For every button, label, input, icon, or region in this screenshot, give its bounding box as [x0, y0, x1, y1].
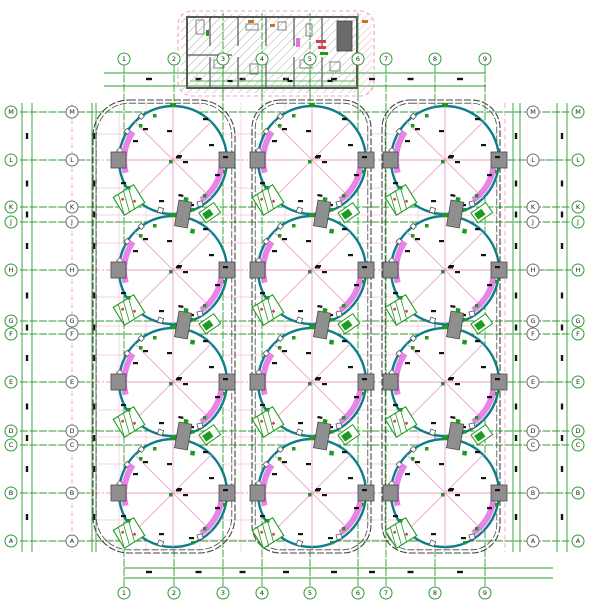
dimension-text-mark [26, 404, 28, 410]
center-label-mark [448, 266, 453, 269]
grid-bubble-label: M [530, 108, 536, 116]
manhole-tick [157, 540, 163, 546]
dimension-text-mark [328, 80, 333, 82]
annotation-text-mark [393, 292, 398, 294]
valve-symbol [463, 318, 467, 322]
valve-symbol [127, 186, 131, 190]
tank-platform-left [383, 485, 398, 501]
pump-valve [455, 197, 460, 202]
top-nozzle [442, 436, 448, 440]
annotation-text-mark [362, 266, 367, 268]
annotation-text-mark [455, 161, 460, 163]
storage-tank [111, 325, 235, 437]
equipment-block [337, 21, 352, 51]
manhole-tick [157, 317, 163, 323]
center-label-mark [448, 378, 453, 381]
valve-symbol [278, 457, 282, 461]
annotation-text-mark [487, 507, 492, 509]
grid-bubble-label: G [69, 317, 74, 325]
grid-bubble-label: A [9, 537, 14, 545]
valve-symbol [127, 408, 131, 412]
valve-symbol [425, 447, 429, 451]
pump-valve [190, 340, 195, 345]
annotation-text-mark [260, 292, 265, 294]
dimension-text-mark [561, 133, 563, 139]
manhole-tick [197, 201, 203, 207]
annotation-text-mark [260, 404, 265, 406]
grid-bubble-label: 1 [122, 589, 126, 597]
grid-bubble-label: F [576, 330, 580, 338]
storage-tanks [111, 103, 507, 548]
dimension-text-mark [196, 571, 202, 573]
annotation-text-mark [475, 228, 480, 230]
annotation-text-mark [183, 494, 188, 496]
grid-bubble-label: D [69, 427, 74, 435]
annotation-text-mark [475, 451, 480, 453]
grid-bubble-label: 8 [433, 589, 437, 597]
grid-bubble-label: B [9, 489, 13, 497]
grid-bubble-label: C [576, 441, 581, 449]
dimension-text-mark [561, 466, 563, 472]
valve-symbol [362, 280, 366, 284]
manhole-tick [469, 311, 475, 317]
grid-bubble-label: 2 [172, 55, 176, 63]
dimension-text-mark [561, 404, 563, 410]
valve-symbol [127, 296, 131, 300]
valve-symbol [475, 416, 479, 420]
valve-symbol [266, 408, 270, 412]
annotation-text-mark [487, 174, 492, 176]
center-symbol [169, 160, 173, 164]
tank-platform-left [250, 374, 265, 390]
center-symbol [308, 493, 312, 497]
annotation-text-mark [167, 352, 172, 354]
manhole-tick [197, 423, 203, 429]
storage-tank [383, 325, 507, 437]
annotation-text-mark [282, 238, 287, 240]
annotation-text-mark [475, 340, 480, 342]
pump-valve [329, 340, 334, 345]
valve-symbol [153, 447, 157, 451]
dimension-text-mark [146, 571, 152, 573]
valve-symbol [266, 296, 270, 300]
orange-text-mark [362, 20, 368, 23]
storage-tank [383, 103, 507, 215]
dimension-text-mark [515, 293, 517, 299]
tank-platform-right [491, 152, 507, 168]
dimension-text-mark [515, 133, 517, 139]
annotation-text-mark [143, 238, 148, 240]
annotation-text-mark [342, 228, 347, 230]
grid-bubble-label: B [70, 489, 74, 497]
manhole-tick [157, 207, 163, 213]
annotation-text-mark [203, 228, 208, 230]
valve-symbol [223, 392, 227, 396]
annotation-text-mark [298, 310, 303, 312]
pump-valve [190, 229, 195, 234]
pump-valve [183, 419, 188, 424]
annotation-text-mark [260, 515, 265, 517]
annotation-text-mark [133, 250, 138, 252]
dimension-text-mark [561, 514, 563, 520]
grid-bubble-label: A [70, 537, 75, 545]
annotation-text-mark [167, 130, 172, 132]
dimension-text-mark [26, 514, 28, 520]
annotation-text-mark [223, 156, 228, 158]
green-text-mark [320, 52, 328, 55]
valve-symbol [139, 234, 143, 238]
manhole-tick [469, 534, 475, 540]
pump-valve [462, 340, 467, 345]
annotation-text-mark [328, 537, 333, 539]
dimension-text-mark [561, 325, 563, 331]
valve-symbol [463, 208, 467, 212]
center-symbol [169, 270, 173, 274]
annotation-text-mark [143, 350, 148, 352]
grid-bubble-label: D [8, 427, 13, 435]
valve-symbol [495, 392, 499, 396]
annotation-text-mark [272, 140, 277, 142]
grid-bubble-label: A [576, 537, 581, 545]
annotation-text-mark [223, 489, 228, 491]
center-symbol [169, 493, 173, 497]
grid-bubble-label: E [531, 378, 535, 386]
grid-bubble-label: F [70, 330, 74, 338]
annotation-text-mark [354, 507, 359, 509]
storage-tank [111, 103, 235, 215]
valve-symbol [139, 346, 143, 350]
annotation-text-mark [342, 118, 347, 120]
tank-platform-right [358, 485, 374, 501]
valve-symbol [292, 447, 296, 451]
annotation-text-mark [203, 451, 208, 453]
valve-symbol [475, 527, 479, 531]
valve-symbol [292, 336, 296, 340]
grid-bubble-label: 5 [308, 589, 312, 597]
manhole-tick [296, 540, 302, 546]
tank-platform-right [491, 485, 507, 501]
center-label-mark [315, 156, 320, 159]
grid-bubble-label: K [70, 203, 75, 211]
tank-platform-left [250, 262, 265, 278]
dimension-text-mark [515, 466, 517, 472]
annotation-text-mark [481, 366, 486, 368]
valve-symbol [411, 457, 415, 461]
top-nozzle [309, 436, 315, 440]
valve-symbol [362, 503, 366, 507]
grid-bubble-label: M [69, 108, 75, 116]
pump-valve [190, 451, 195, 456]
grid-bubble-label: J [531, 218, 534, 226]
annotation-text-mark [183, 383, 188, 385]
annotation-text-mark [121, 182, 126, 184]
annotation-text-mark [215, 174, 220, 176]
manhole-tick [336, 201, 342, 207]
grid-bubble-label: 7 [384, 589, 388, 597]
center-label-mark [176, 489, 181, 492]
tank-platform-right [358, 152, 374, 168]
center-symbol [169, 382, 173, 386]
annotation-text-mark [133, 362, 138, 364]
manhole-tick [296, 317, 302, 323]
valve-symbol [411, 124, 415, 128]
grid-bubble-label: D [575, 427, 580, 435]
annotation-text-mark [415, 350, 420, 352]
valve-symbol [203, 194, 207, 198]
dimension-text-mark [26, 212, 28, 218]
dimension-text-mark [26, 355, 28, 361]
valve-symbol [223, 503, 227, 507]
grid-bubble-label: D [530, 427, 535, 435]
annotation-text-mark [159, 200, 164, 202]
valve-symbol [475, 194, 479, 198]
annotation-text-mark [306, 463, 311, 465]
center-symbol [308, 382, 312, 386]
dimension-text-mark [561, 212, 563, 218]
pump-valve [322, 308, 327, 313]
manhole-tick [296, 207, 302, 213]
center-symbol [441, 160, 445, 164]
valve-symbol [292, 114, 296, 118]
manhole-tick [336, 423, 342, 429]
dimension-text-mark [515, 181, 517, 187]
grid-bubble-label: 9 [483, 589, 487, 597]
annotation-text-mark [495, 266, 500, 268]
grid-bubble-label: K [576, 203, 581, 211]
manhole-tick [197, 534, 203, 540]
dimension-text-mark [561, 293, 563, 299]
annotation-text-mark [322, 383, 327, 385]
tank-platform-right [219, 152, 235, 168]
dimension-text-mark [515, 435, 517, 441]
valve-symbol [495, 503, 499, 507]
annotation-text-mark [143, 461, 148, 463]
storage-tank [111, 213, 235, 325]
annotation-text-mark [209, 477, 214, 479]
annotation-text-mark [260, 182, 265, 184]
grid-bubble-label: C [531, 441, 536, 449]
valve-symbol [153, 224, 157, 228]
dimension-text-mark [26, 466, 28, 472]
valve-symbol [399, 519, 403, 523]
grid-bubble-label: J [70, 218, 73, 226]
annotation-text-mark [133, 140, 138, 142]
annotation-text-mark [439, 463, 444, 465]
annotation-text-mark [159, 533, 164, 535]
grid-bubble-label: K [531, 203, 536, 211]
red-text-mark [318, 46, 326, 49]
annotation-text-mark [431, 310, 436, 312]
annotation-text-mark [183, 271, 188, 273]
annotation-text-mark [362, 489, 367, 491]
site-plan-drawing: 112233445566778899MMMMLLLLKKKKJJJJHHHHGG… [0, 0, 600, 600]
dimension-text-mark [408, 78, 414, 80]
annotation-text-mark [439, 130, 444, 132]
annotation-text-mark [272, 362, 277, 364]
annotation-text-mark [455, 271, 460, 273]
tank-platform-left [111, 152, 126, 168]
annotation-text-mark [348, 366, 353, 368]
annotation-text-mark [159, 310, 164, 312]
annotation-text-mark [282, 461, 287, 463]
annotation-text-mark [322, 271, 327, 273]
grid-bubble-label: 6 [356, 589, 360, 597]
valve-symbol [292, 224, 296, 228]
tank-platform-left [383, 152, 398, 168]
tank-platform-left [111, 485, 126, 501]
dimension-text-mark [283, 571, 289, 573]
center-label-mark [315, 266, 320, 269]
grid-bubble-label: 5 [308, 55, 312, 63]
storage-tank [111, 436, 235, 548]
valve-symbol [266, 186, 270, 190]
dimension-text-mark [561, 181, 563, 187]
valve-symbol [411, 234, 415, 238]
annotation-text-mark [348, 477, 353, 479]
dimension-text-mark [515, 514, 517, 520]
tank-platform-left [250, 152, 265, 168]
top-nozzle [170, 103, 176, 107]
annotation-text-mark [455, 383, 460, 385]
annotation-text-mark [487, 396, 492, 398]
annotation-text-mark [215, 396, 220, 398]
top-nozzle [309, 325, 315, 329]
grid-bubble-label: H [70, 266, 75, 274]
valve-symbol [191, 318, 195, 322]
grid-bubble-label: L [576, 156, 580, 164]
manhole-tick [469, 201, 475, 207]
center-label-mark [448, 156, 453, 159]
grid-bubble-label: M [575, 108, 581, 116]
annotation-text-mark [405, 250, 410, 252]
valve-symbol [203, 527, 207, 531]
valve-symbol [411, 346, 415, 350]
valve-symbol [425, 114, 429, 118]
annotation-text-mark [415, 238, 420, 240]
grid-bubble-label: 1 [122, 55, 126, 63]
tank-platform-right [491, 262, 507, 278]
dimension-text-mark [457, 78, 463, 80]
top-nozzle [170, 213, 176, 217]
annotation-text-mark [354, 174, 359, 176]
dimension-text-mark [228, 80, 233, 82]
pump-valve [183, 197, 188, 202]
annotation-text-mark [133, 473, 138, 475]
annotation-text-mark [393, 182, 398, 184]
top-nozzle [309, 103, 315, 107]
valve-symbol [463, 430, 467, 434]
annotation-text-mark [439, 352, 444, 354]
tank-platform-right [491, 374, 507, 390]
pump-house-detail [178, 11, 374, 100]
annotation-text-mark [431, 200, 436, 202]
tank-platform-right [219, 485, 235, 501]
center-label-mark [315, 378, 320, 381]
manhole-tick [429, 207, 435, 213]
center-symbol [441, 493, 445, 497]
annotation-text-mark [322, 494, 327, 496]
annotation-text-mark [455, 494, 460, 496]
dimension-text-mark [515, 404, 517, 410]
annotation-text-mark [203, 118, 208, 120]
valve-symbol [191, 430, 195, 434]
annotation-text-mark [223, 378, 228, 380]
center-symbol [308, 160, 312, 164]
grid-bubble-label: G [575, 317, 580, 325]
pump-valve [462, 451, 467, 456]
annotation-text-mark [209, 366, 214, 368]
grid-bubble-label: H [9, 266, 14, 274]
valve-symbol [330, 541, 334, 545]
dimension-text-mark [408, 571, 414, 573]
grid-bubble-label: H [576, 266, 581, 274]
grid-bubble-label: 3 [221, 589, 225, 597]
manhole-tick [336, 534, 342, 540]
dimension-text-mark [26, 293, 28, 299]
top-nozzle [442, 325, 448, 329]
valve-symbol [191, 208, 195, 212]
annotation-text-mark [487, 284, 492, 286]
annotation-text-mark [431, 422, 436, 424]
grid-bubble-label: E [9, 378, 13, 386]
tank-platform-left [250, 485, 265, 501]
dimension-text-mark [26, 435, 28, 441]
valve-symbol [362, 392, 366, 396]
grid-bubble-label: L [531, 156, 535, 164]
valve-symbol [139, 124, 143, 128]
annotation-text-mark [306, 240, 311, 242]
grid-bubble-label: 9 [483, 55, 487, 63]
grid-bubble-label: 7 [384, 55, 388, 63]
tank-platform-right [219, 262, 235, 278]
dimension-text-mark [26, 325, 28, 331]
valve-symbol [342, 527, 346, 531]
annotation-text-mark [393, 515, 398, 517]
valve-symbol [223, 170, 227, 174]
manhole-tick [157, 429, 163, 435]
dimension-text-mark [457, 571, 463, 573]
valve-symbol [330, 208, 334, 212]
valve-symbol [191, 541, 195, 545]
grid-bubble-label: H [531, 266, 536, 274]
annotation-text-mark [143, 128, 148, 130]
valve-symbol [362, 170, 366, 174]
valve-symbol [475, 304, 479, 308]
annotation-text-mark [121, 515, 126, 517]
dimension-text-mark [561, 355, 563, 361]
dimension-text-mark [288, 80, 293, 82]
center-label-mark [176, 378, 181, 381]
tank-platform-left [111, 374, 126, 390]
annotation-text-mark [215, 284, 220, 286]
valve-symbol [399, 186, 403, 190]
center-label-mark [448, 489, 453, 492]
manhole-tick [336, 311, 342, 317]
annotation-text-mark [189, 537, 194, 539]
grid-bubble-label: 6 [356, 55, 360, 63]
grid-bubble-label: M [8, 108, 14, 116]
annotation-text-mark [298, 422, 303, 424]
storage-tank [250, 325, 374, 437]
dimension-text-mark [369, 571, 375, 573]
pump-valve [455, 419, 460, 424]
valve-symbol [425, 336, 429, 340]
pump-valve [462, 229, 467, 234]
valve-symbol [342, 194, 346, 198]
pump-valve [329, 451, 334, 456]
tank-platform-left [111, 262, 126, 278]
annotation-text-mark [298, 200, 303, 202]
